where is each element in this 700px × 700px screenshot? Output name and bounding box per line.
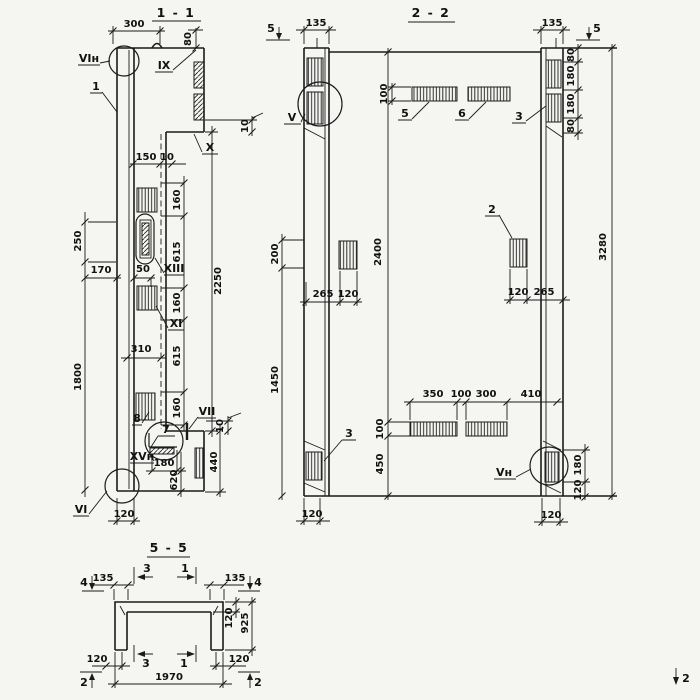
- marker-2-left: 2: [80, 676, 88, 689]
- label-XIII: XIII: [164, 262, 185, 275]
- drawing-sheet: 1 - 1 300 80 150 10 160 615 160 615 160 …: [0, 0, 700, 700]
- dim-100-bottom: 100: [375, 419, 386, 440]
- dim-80: 80: [183, 32, 194, 46]
- dim-180-b: 180: [566, 94, 577, 115]
- dim-135-right-55: 135: [225, 573, 246, 584]
- dim-120-c: 120: [573, 480, 584, 501]
- dim-120-flange: 120: [224, 608, 235, 629]
- marker-4-left: 4: [80, 576, 88, 589]
- label-X: X: [206, 141, 215, 154]
- marker-5-right: 5: [593, 22, 601, 35]
- dim-615-a: 615: [172, 242, 183, 263]
- technical-drawing: 1 - 1 300 80 150 10 160 615 160 615 160 …: [0, 0, 700, 700]
- dim-925: 925: [240, 613, 251, 634]
- dim-440: 440: [209, 452, 220, 473]
- marker-3-top: 3: [143, 562, 151, 575]
- dim-135-right: 135: [542, 18, 563, 29]
- dim-120-bottom: 120: [114, 509, 135, 520]
- dim-1970: 1970: [155, 672, 183, 683]
- dim-50: 50: [136, 264, 150, 275]
- dim-120-bottom-right-55: 120: [229, 654, 250, 665]
- label-pos-8: 8: [133, 412, 141, 425]
- label-pos-3-left: 3: [345, 427, 353, 440]
- dim-100-top: 100: [379, 84, 390, 105]
- label-pos-5: 5: [401, 107, 409, 120]
- dim-120-right: 120: [508, 287, 529, 298]
- title-1-1: 1 - 1: [157, 5, 196, 20]
- corner-marks-5-5: [120, 606, 218, 615]
- section-2-2: 2 - 2 135 135 5 5 80 180 180 80 3280 100…: [266, 5, 617, 526]
- marker-2-right: 2: [254, 676, 262, 689]
- dim-300: 300: [124, 19, 145, 30]
- dim-350: 350: [423, 389, 444, 400]
- dim-100-mid: 100: [451, 389, 472, 400]
- dim-150: 150: [136, 152, 157, 163]
- dim-620: 620: [169, 470, 180, 491]
- dim-1800: 1800: [73, 363, 84, 391]
- label-V: V: [288, 111, 297, 124]
- dim-3280: 3280: [598, 233, 609, 261]
- dim-120-bottom-left-55: 120: [87, 654, 108, 665]
- label-XVn: XVн: [130, 450, 155, 463]
- section-5-5: 5 - 5 135 135 4 4 3 1 3 1 120 925 120 12…: [80, 540, 262, 689]
- dim-2250: 2250: [213, 267, 224, 295]
- dim-265-left: 265: [313, 289, 334, 300]
- label-pos-3-right: 3: [515, 110, 523, 123]
- title-5-5: 5 - 5: [150, 540, 189, 555]
- corner-section-mark: 2: [673, 668, 690, 685]
- marker-1-top: 1: [181, 562, 189, 575]
- dim-80-b: 80: [566, 119, 577, 133]
- outline-5-5: [115, 602, 223, 650]
- label-pos-1: 1: [92, 80, 100, 93]
- dim-120-bottom-right: 120: [541, 510, 562, 521]
- dim-450: 450: [375, 454, 386, 475]
- dim-310: 310: [131, 344, 152, 355]
- dim-10-bottom: 10: [215, 419, 226, 433]
- dim-180-a: 180: [566, 66, 577, 87]
- section-1-1: 1 - 1 300 80 150 10 160 615 160 615 160 …: [73, 5, 263, 525]
- dim-300: 300: [476, 389, 497, 400]
- marker-4-right: 4: [254, 576, 262, 589]
- dim-265-right: 265: [534, 287, 555, 298]
- dim-410: 410: [521, 389, 542, 400]
- label-pos-2: 2: [488, 203, 496, 216]
- label-pos-7: 7: [162, 423, 170, 436]
- dim-615-b: 615: [172, 346, 183, 367]
- title-2-2: 2 - 2: [412, 5, 451, 20]
- marker-5-left: 5: [267, 22, 275, 35]
- marker-1-bottom: 1: [180, 657, 188, 670]
- dim-135-left: 135: [306, 18, 327, 29]
- dim-80-a: 80: [566, 48, 577, 62]
- dim-250: 250: [73, 231, 84, 252]
- label-VII: VII: [199, 405, 216, 418]
- dim-120-left: 120: [338, 289, 359, 300]
- dim-1450: 1450: [270, 366, 281, 394]
- label-VI: VI: [75, 503, 88, 516]
- label-VIn: VIн: [79, 52, 99, 65]
- dim-135-left-55: 135: [93, 573, 114, 584]
- dim-10-right: 10: [240, 119, 251, 133]
- texts-5-5: 5 - 5 135 135 4 4 3 1 3 1 120 925 120 12…: [80, 540, 262, 689]
- dim-180-c: 180: [573, 455, 584, 476]
- label-Vn: Vн: [496, 466, 512, 479]
- label-XI: XI: [170, 317, 183, 330]
- dim-160-b: 160: [172, 293, 183, 314]
- dim-170: 170: [91, 265, 112, 276]
- label-IX: IX: [158, 59, 171, 72]
- dim-10-top: 10: [160, 152, 174, 163]
- dim-2400: 2400: [373, 238, 384, 266]
- dim-120-bottom-left: 120: [302, 509, 323, 520]
- corner-mark-label: 2: [682, 672, 690, 685]
- label-pos-6: 6: [458, 107, 466, 120]
- dim-160-c: 160: [172, 398, 183, 419]
- dim-200: 200: [270, 244, 281, 265]
- dim-180: 180: [154, 458, 175, 469]
- texts-1-1: 1 - 1 300 80 150 10 160 615 160 615 160 …: [73, 5, 251, 520]
- dim-160-a: 160: [172, 190, 183, 211]
- marker-3-bottom: 3: [142, 657, 150, 670]
- marker-arrows-2-2: [276, 33, 592, 40]
